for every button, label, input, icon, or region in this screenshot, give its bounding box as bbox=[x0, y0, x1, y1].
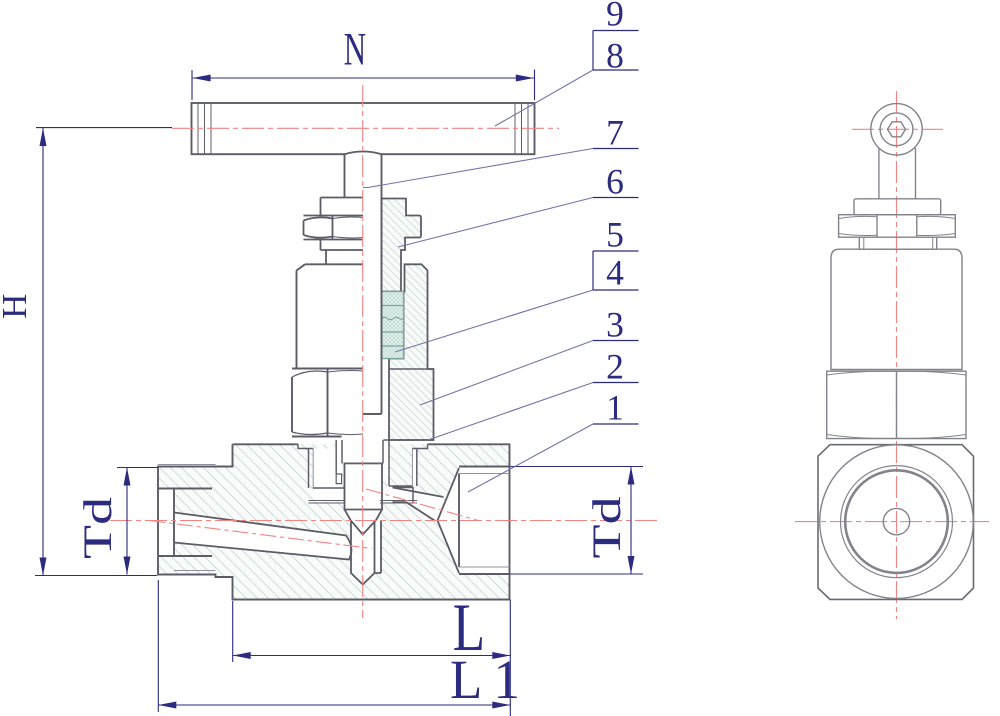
svg-text:5: 5 bbox=[606, 215, 624, 255]
svg-text:6: 6 bbox=[606, 162, 624, 202]
svg-text:Td: Td bbox=[75, 497, 120, 559]
svg-text:2: 2 bbox=[606, 347, 624, 387]
svg-text:4: 4 bbox=[606, 253, 624, 293]
svg-text:3: 3 bbox=[606, 305, 624, 345]
svg-text:L 1: L 1 bbox=[450, 649, 520, 710]
svg-text:1: 1 bbox=[606, 388, 624, 428]
svg-text:7: 7 bbox=[606, 113, 624, 153]
svg-text:N: N bbox=[344, 23, 366, 75]
svg-text:Td: Td bbox=[584, 497, 629, 559]
svg-text:H: H bbox=[0, 294, 34, 319]
svg-text:9: 9 bbox=[606, 0, 624, 34]
svg-text:8: 8 bbox=[606, 36, 624, 76]
